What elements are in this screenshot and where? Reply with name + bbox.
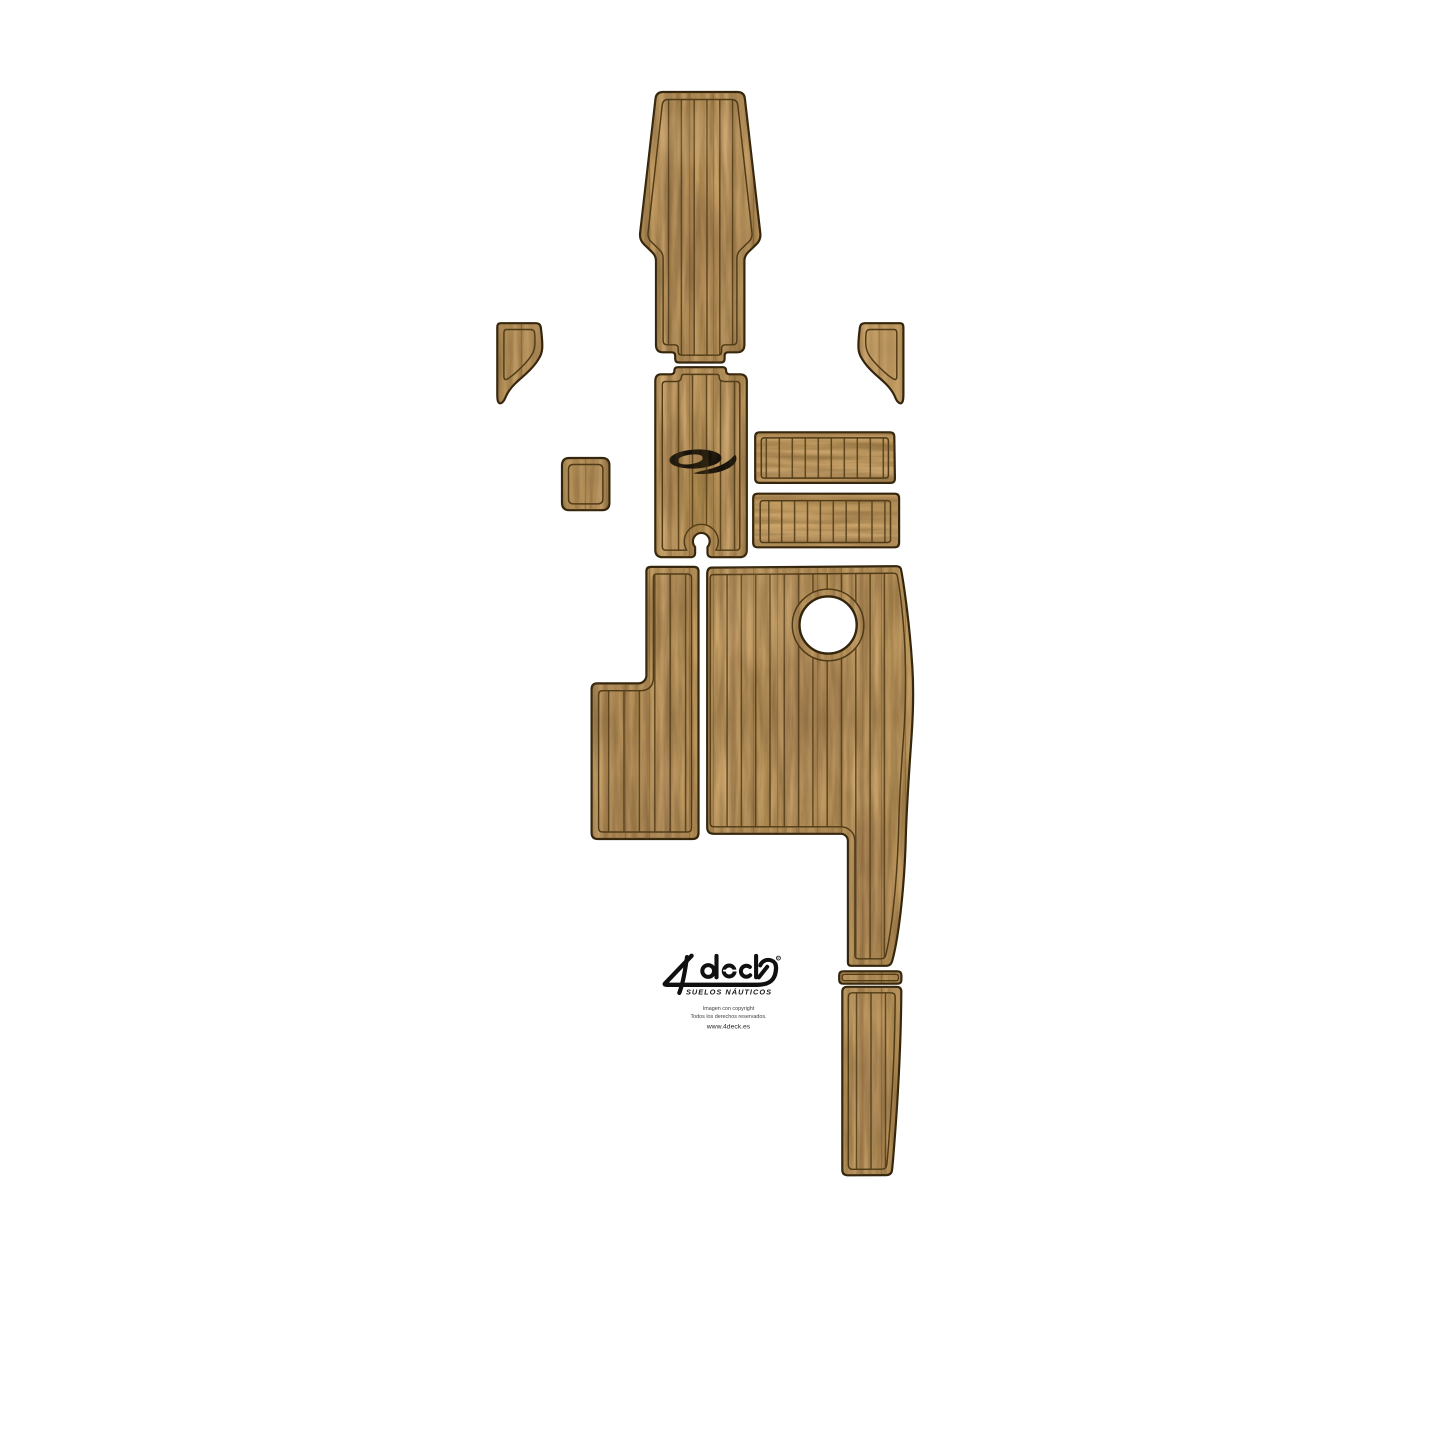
svg-text:SUELOS NÁUTICOS: SUELOS NÁUTICOS (686, 987, 772, 996)
svg-text:Todos los derechos reservados.: Todos los derechos reservados. (690, 1014, 766, 1020)
svg-text:Imagen con copyright: Imagen con copyright (703, 1006, 755, 1012)
svg-text:www.4deck.es: www.4deck.es (706, 1023, 751, 1030)
